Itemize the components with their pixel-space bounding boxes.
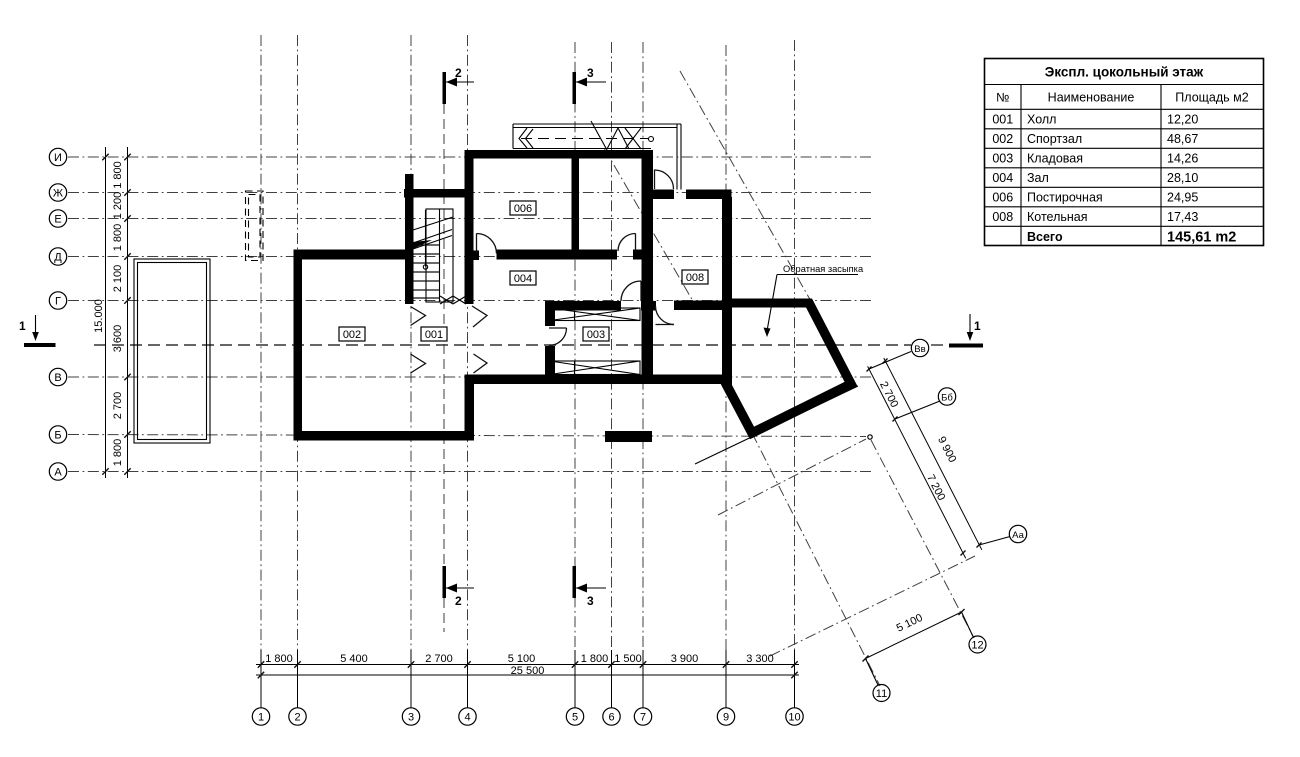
svg-text:6: 6	[608, 712, 614, 724]
svg-text:1 800: 1 800	[112, 161, 124, 189]
svg-text:Зал: Зал	[1027, 171, 1049, 185]
svg-text:1 500: 1 500	[614, 653, 642, 665]
svg-text:1 200: 1 200	[112, 192, 124, 220]
svg-text:И: И	[54, 152, 62, 164]
svg-text:28,10: 28,10	[1167, 171, 1198, 185]
svg-text:Аа: Аа	[1012, 530, 1024, 541]
svg-text:3: 3	[408, 712, 414, 724]
svg-text:1 800: 1 800	[581, 653, 609, 665]
svg-text:002: 002	[343, 329, 361, 341]
svg-text:3: 3	[587, 66, 594, 80]
svg-text:Спортзал: Спортзал	[1027, 132, 1082, 146]
svg-text:1: 1	[19, 319, 26, 333]
svg-text:003: 003	[587, 329, 605, 341]
svg-text:5 400: 5 400	[340, 653, 368, 665]
svg-text:002: 002	[992, 132, 1013, 146]
svg-text:7: 7	[640, 712, 646, 724]
svg-text:1 800: 1 800	[112, 439, 124, 467]
svg-text:Обратная засыпка: Обратная засыпка	[783, 264, 864, 274]
svg-text:Экспл. цокольный этаж: Экспл. цокольный этаж	[1045, 65, 1204, 80]
svg-text:11: 11	[876, 688, 887, 700]
svg-text:10: 10	[788, 712, 800, 724]
svg-text:5: 5	[572, 712, 578, 724]
svg-text:Б: Б	[54, 430, 61, 442]
svg-text:001: 001	[992, 113, 1013, 127]
svg-text:Котельная: Котельная	[1027, 210, 1088, 224]
svg-text:008: 008	[686, 272, 704, 284]
svg-text:006: 006	[992, 191, 1013, 205]
svg-text:2: 2	[455, 66, 462, 80]
svg-text:48,67: 48,67	[1167, 132, 1198, 146]
svg-text:3: 3	[587, 594, 594, 608]
svg-text:17,43: 17,43	[1167, 210, 1198, 224]
svg-text:5 100: 5 100	[508, 653, 536, 665]
svg-text:Наименование: Наименование	[1048, 91, 1135, 105]
svg-text:25 500: 25 500	[511, 665, 545, 677]
svg-text:2: 2	[455, 594, 462, 608]
svg-text:004: 004	[992, 171, 1013, 185]
svg-text:Постирочная: Постирочная	[1027, 191, 1103, 205]
svg-text:Кладовая: Кладовая	[1027, 152, 1083, 166]
svg-text:006: 006	[514, 203, 532, 215]
svg-text:004: 004	[514, 273, 532, 285]
svg-text:1 800: 1 800	[112, 224, 124, 252]
svg-text:12: 12	[971, 640, 983, 652]
svg-text:2 700: 2 700	[112, 392, 124, 420]
svg-text:15.000: 15.000	[93, 299, 105, 333]
svg-text:145,61 m2: 145,61 m2	[1167, 230, 1236, 246]
svg-text:4: 4	[464, 712, 470, 724]
svg-text:003: 003	[992, 152, 1013, 166]
svg-text:008: 008	[992, 210, 1013, 224]
svg-text:1: 1	[258, 712, 264, 724]
svg-text:9: 9	[723, 712, 729, 724]
svg-text:14,26: 14,26	[1167, 152, 1198, 166]
svg-text:Всего: Всего	[1027, 230, 1063, 244]
svg-text:№: №	[996, 91, 1009, 105]
svg-text:Г: Г	[55, 296, 61, 308]
svg-text:А: А	[54, 467, 62, 479]
svg-text:3 900: 3 900	[671, 653, 699, 665]
svg-text:Площадь м2: Площадь м2	[1175, 91, 1248, 105]
svg-text:1: 1	[974, 319, 981, 333]
svg-text:В: В	[54, 372, 61, 384]
svg-text:Вв: Вв	[914, 344, 925, 355]
svg-text:Ж: Ж	[53, 188, 63, 200]
svg-text:Д: Д	[54, 252, 62, 264]
svg-text:2 700: 2 700	[425, 653, 453, 665]
svg-text:24,95: 24,95	[1167, 191, 1198, 205]
svg-text:Е: Е	[54, 214, 61, 226]
svg-text:3 600: 3 600	[112, 325, 124, 353]
svg-text:2 100: 2 100	[112, 265, 124, 293]
svg-text:1 800: 1 800	[265, 653, 293, 665]
svg-text:Бб: Бб	[941, 393, 953, 404]
svg-text:12,20: 12,20	[1167, 113, 1198, 127]
svg-text:Холл: Холл	[1027, 113, 1056, 127]
svg-text:2: 2	[294, 712, 300, 724]
svg-text:001: 001	[425, 329, 443, 341]
svg-text:3 300: 3 300	[746, 653, 774, 665]
